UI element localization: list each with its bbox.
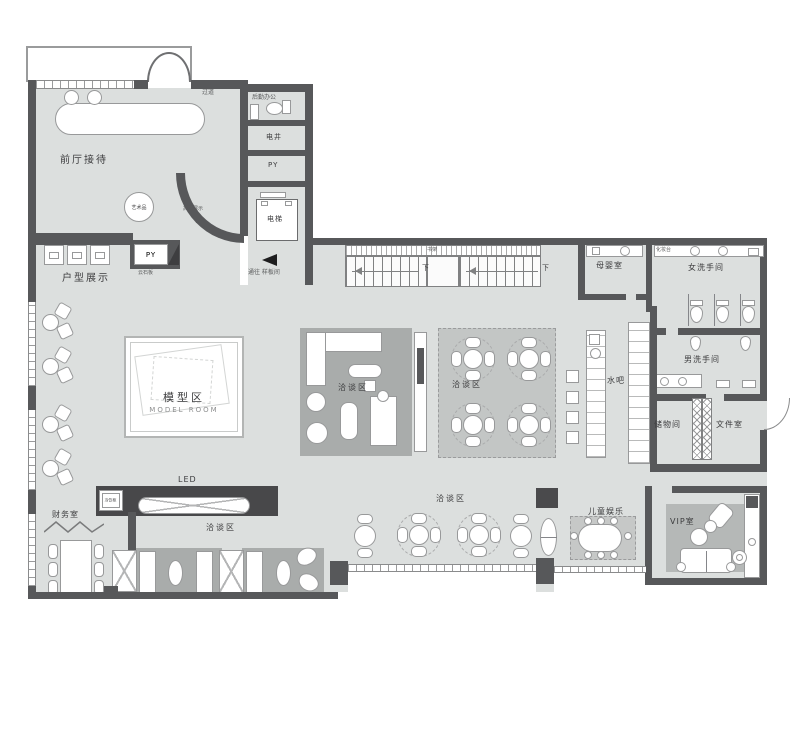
floor-plan: 艺术品 PY 冷饮柜: [0, 0, 800, 739]
tv-screen: [417, 348, 424, 384]
label-vanity: 化妆台: [656, 248, 671, 253]
chair: [521, 436, 537, 447]
chair: [48, 562, 58, 577]
toilet-tank: [282, 100, 291, 114]
label-stair-down: 下: [422, 265, 430, 272]
room-label-file-room: 文件室: [716, 421, 743, 429]
window-seating: [42, 304, 74, 340]
table-4-seats: [506, 402, 552, 448]
chaise: [340, 402, 358, 440]
round-table: [463, 349, 483, 369]
chair: [357, 514, 373, 524]
stall-partition: [740, 294, 741, 326]
chair: [451, 351, 462, 367]
kids-chair: [584, 551, 592, 559]
exterior-mask: [554, 573, 645, 633]
wall-segment: [645, 486, 652, 585]
stand-inset: [49, 252, 59, 259]
wall-segment: [724, 394, 767, 401]
wall-segment: [28, 592, 338, 599]
unit-display-stand: [67, 245, 87, 265]
oval-table: [276, 560, 291, 586]
sofa: [306, 332, 326, 386]
counter-box: [748, 248, 759, 256]
kids-chair: [597, 551, 605, 559]
wall-segment: [248, 181, 305, 187]
hatched-partition: [692, 398, 702, 460]
chair: [507, 351, 518, 367]
chair: [513, 514, 529, 524]
kids-chair: [584, 517, 592, 525]
round-table: [463, 415, 483, 435]
sink: [660, 377, 669, 386]
room-label-py: PY: [268, 162, 278, 169]
wall-segment: [248, 120, 305, 126]
conference-table: [60, 540, 92, 594]
elevator-door-mark: [285, 201, 292, 206]
kids-table: [578, 524, 622, 552]
wall-segment: [248, 150, 305, 156]
label-to-model-rooms: 通往 样板间: [248, 270, 280, 276]
label-model-area-cn: 模型区: [124, 392, 244, 403]
room-label-elevator: 电梯: [267, 216, 283, 223]
sink: [678, 377, 687, 386]
wall-pier: [104, 586, 118, 599]
stand-inset: [95, 252, 105, 259]
cold-drink-label: 冷饮柜: [105, 498, 117, 503]
window: [554, 566, 646, 573]
chair: [430, 527, 441, 543]
round-table: [409, 525, 429, 545]
chair: [471, 546, 487, 557]
stair-landing: [427, 256, 459, 287]
window: [28, 514, 36, 586]
elevator-door-mark: [261, 201, 268, 206]
desk: [370, 396, 397, 446]
wall-segment: [28, 490, 36, 514]
chair: [507, 417, 518, 433]
round-table: [519, 415, 539, 435]
wall-segment: [28, 80, 36, 302]
kids-chair: [570, 532, 578, 540]
label-highend-display: 高端展示: [183, 207, 203, 212]
window: [36, 80, 134, 89]
chair: [411, 546, 427, 557]
chair: [540, 351, 551, 367]
round-table: [519, 349, 539, 369]
wall-segment: [650, 306, 657, 472]
cold-drink-label-box: 冷饮柜: [102, 493, 120, 508]
display-stand: [566, 391, 579, 404]
chair: [513, 548, 529, 558]
wall-segment: [305, 84, 313, 285]
sofa: [196, 551, 213, 593]
armchair: [306, 392, 326, 412]
kids-chair: [624, 532, 632, 540]
table-4-seats: [506, 336, 552, 382]
round-table: [510, 525, 532, 547]
wall-segment: [292, 84, 304, 92]
chair: [484, 351, 495, 367]
wall-segment: [760, 486, 767, 585]
wall-segment: [28, 233, 133, 245]
bar-sink: [589, 334, 600, 345]
wall-segment: [650, 464, 767, 472]
kids-chair: [610, 551, 618, 559]
window-seating: [42, 406, 74, 442]
table-2-seats: [506, 514, 536, 558]
bench: [716, 380, 730, 388]
chair: [411, 513, 427, 524]
chair: [94, 544, 104, 559]
room-label-negotiation: 洽谈区: [452, 381, 482, 389]
wall-pier: [330, 561, 348, 585]
oval-table: [168, 560, 183, 586]
room-label-kids: 儿童娱乐: [588, 508, 624, 516]
table-4-seats: [450, 336, 496, 382]
chair: [465, 337, 481, 348]
chair: [540, 417, 551, 433]
stool: [87, 90, 102, 105]
art-label: 艺术品: [131, 204, 146, 211]
bench: [742, 380, 756, 388]
sofa-arm: [676, 562, 686, 572]
room-label-unit-display: 户型展示: [62, 274, 110, 284]
stand-inset: [72, 252, 82, 259]
bookshelf-band: [345, 245, 541, 256]
window: [28, 410, 36, 490]
entry-arrow-icon: [262, 254, 277, 266]
chair: [357, 548, 373, 558]
window: [348, 564, 536, 572]
chair: [521, 403, 537, 414]
art-display: 艺术品: [124, 192, 154, 222]
room-label-finance: 财务室: [52, 511, 79, 519]
wall-segment: [578, 294, 626, 300]
label-corridor: 过道: [202, 90, 214, 96]
py-wedge: [168, 244, 179, 265]
room-label-reception: 前厅接待: [60, 156, 108, 166]
round-table: [354, 525, 376, 547]
hatched-partition: [702, 398, 712, 460]
display-stand: [566, 411, 579, 424]
exterior-mask: [348, 572, 536, 632]
reception-desk: [55, 103, 205, 135]
chair: [521, 370, 537, 381]
room-label-negotiation: 洽谈区: [436, 495, 466, 503]
wall-pier: [536, 558, 554, 584]
room-label-storage: 储物间: [654, 421, 681, 429]
chair: [48, 544, 58, 559]
chair: [465, 436, 481, 447]
sofa: [680, 548, 732, 573]
py-niche-inner: PY: [134, 244, 168, 265]
label-model-area-en: MODEL ROOM: [124, 407, 244, 414]
cabinet-box: [746, 496, 758, 508]
cabinet-knob: [748, 538, 756, 546]
window: [28, 302, 36, 386]
unit-display-stand: [90, 245, 110, 265]
chair: [490, 527, 501, 543]
room-label-negotiation: 洽谈区: [206, 524, 236, 532]
coffee-table: [348, 364, 382, 378]
label-stair-down: 下: [542, 265, 550, 272]
stall-partition: [688, 294, 689, 326]
chair: [94, 562, 104, 577]
window-seating: [42, 348, 74, 384]
kids-chair: [597, 517, 605, 525]
back-counter: [628, 322, 650, 464]
wall-segment: [760, 238, 767, 400]
stool: [64, 90, 79, 105]
sink: [690, 246, 700, 256]
room-label-men-wc: 男洗手间: [684, 356, 720, 364]
wall-segment: [305, 238, 767, 245]
sink: [718, 246, 728, 256]
chair: [397, 527, 408, 543]
sink: [620, 246, 630, 256]
play-cabinet: [536, 488, 558, 508]
lamp-inner: [736, 554, 743, 561]
chair: [471, 513, 487, 524]
elevator-lintel: [260, 192, 286, 198]
bench-line: [541, 537, 557, 538]
exterior-mask: [645, 585, 770, 635]
chair: [484, 417, 495, 433]
label-bookshelf: 书架: [427, 248, 437, 253]
wall-segment: [646, 238, 652, 312]
exterior-door-swing: [764, 398, 790, 430]
wall-segment: [678, 328, 767, 335]
chair: [377, 390, 389, 402]
sofa: [246, 551, 263, 593]
table-4-seats: [450, 402, 496, 448]
chair: [451, 417, 462, 433]
table-4-seats: [456, 512, 502, 558]
py-label: PY: [146, 251, 156, 259]
stair-direction-arrow: [466, 271, 538, 272]
round-table: [469, 525, 489, 545]
sofa: [139, 551, 156, 593]
room-label-negotiation: 洽谈区: [338, 384, 368, 392]
kids-chair: [610, 517, 618, 525]
room-label-mother-baby: 母婴室: [596, 262, 623, 270]
chair: [465, 403, 481, 414]
label-led: LED: [178, 476, 197, 484]
display-stand: [566, 431, 579, 444]
display-stand: [566, 370, 579, 383]
nesting-table: [704, 520, 717, 533]
wall-segment: [578, 238, 585, 300]
sofa-seam: [706, 551, 707, 572]
room-label-water-bar: 水吧: [607, 377, 625, 385]
table-2-seats: [350, 514, 380, 558]
wall-segment: [645, 578, 767, 585]
stair-direction-arrow: [352, 271, 418, 272]
curved-bench: [138, 497, 250, 514]
kettle: [590, 348, 601, 359]
window-seating: [42, 450, 74, 486]
table-4-seats: [396, 512, 442, 558]
oval-bench: [540, 518, 557, 556]
shelf-unit: [250, 104, 259, 120]
counter-box: [592, 247, 600, 255]
wall-segment: [672, 486, 767, 493]
room-label-shaft: 电井: [266, 134, 282, 141]
toilet: [266, 102, 283, 115]
armchair: [306, 422, 328, 444]
folding-screen: [44, 518, 104, 536]
wall-segment: [28, 386, 36, 410]
stall-partition: [714, 294, 715, 326]
room-label-women-wc: 女洗手间: [688, 264, 724, 272]
cold-drink-cabinet: 冷饮柜: [99, 490, 123, 511]
label-stone-slab: 云石板: [138, 271, 153, 276]
chair: [521, 337, 537, 348]
wall-segment: [134, 80, 148, 89]
chair: [457, 527, 468, 543]
room-label-back-office: 后勤办公: [252, 95, 276, 101]
lounge-chair: [219, 550, 244, 593]
floor-lamp: [732, 550, 747, 565]
unit-display-stand: [44, 245, 64, 265]
room-label-vip: VIP室: [670, 518, 695, 526]
